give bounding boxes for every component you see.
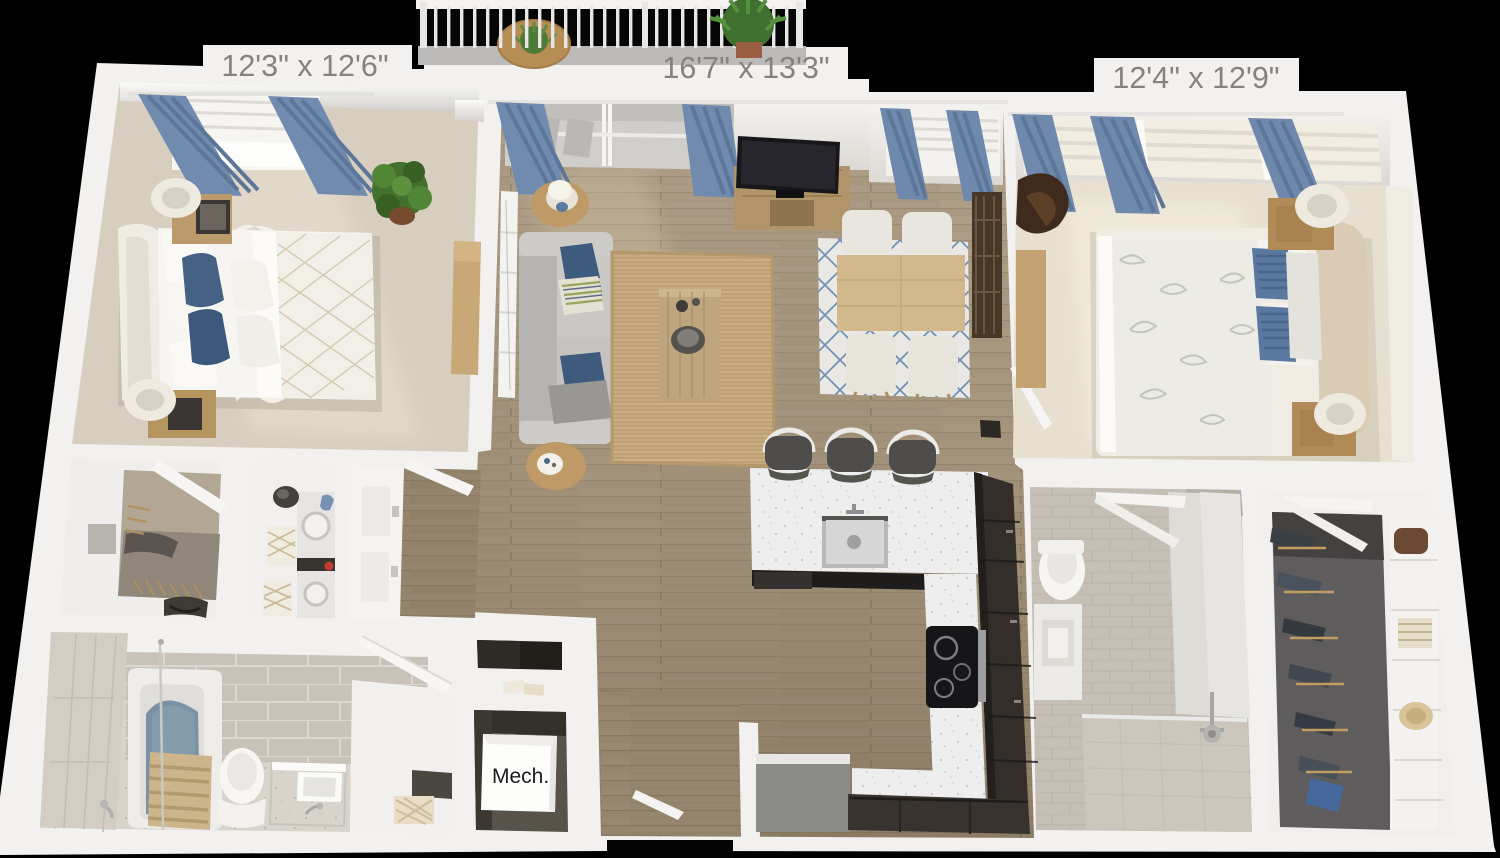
svg-text:16'7" x 13'3": 16'7" x 13'3" (662, 51, 829, 85)
svg-text:Mech.: Mech. (492, 765, 549, 788)
svg-text:12'3" x 12'6": 12'3" x 12'6" (221, 49, 388, 83)
svg-text:12'4" x 12'9": 12'4" x 12'9" (1112, 61, 1279, 95)
